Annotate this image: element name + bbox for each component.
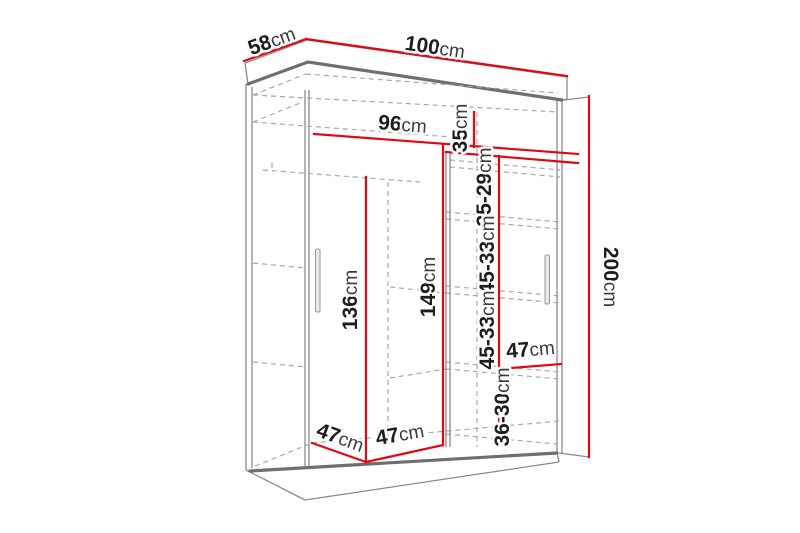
gap1-label: 35-29cm bbox=[473, 147, 496, 226]
gap2-label: 45-33cm bbox=[476, 215, 499, 294]
dimension-lines bbox=[244, 39, 589, 462]
top-shelf-front-line bbox=[446, 152, 578, 163]
bottom-left-label: 47cm bbox=[313, 419, 367, 457]
depth-label: 58cm bbox=[245, 22, 299, 60]
centre-divider bbox=[446, 152, 450, 447]
dimension-labels: 58cm 100cm 200cm 96cm 35cm 35-29cm 45-33… bbox=[245, 22, 622, 457]
bottom-mid-label: 47cm bbox=[374, 419, 426, 450]
wardrobe-dimension-diagram: 58cm 100cm 200cm 96cm 35cm 35-29cm 45-33… bbox=[0, 0, 800, 533]
height-label: 200cm bbox=[599, 247, 622, 307]
gap4-label: 36-30cm bbox=[491, 367, 514, 446]
left-height-label: 136cm bbox=[339, 270, 362, 330]
interior-width-label: 96cm bbox=[377, 111, 427, 138]
left-door-handle bbox=[316, 249, 321, 312]
shelf-width-label: 47cm bbox=[505, 336, 556, 363]
mid-height-label: 149cm bbox=[417, 257, 440, 317]
width-label: 100cm bbox=[403, 32, 466, 63]
gap3-label: 45-33cm bbox=[476, 290, 499, 369]
product-dimension-image: 58cm 100cm 200cm 96cm 35cm 35-29cm 45-33… bbox=[0, 0, 800, 533]
right-door-handle bbox=[545, 255, 550, 304]
top-shelf-label: 35cm bbox=[449, 104, 472, 153]
